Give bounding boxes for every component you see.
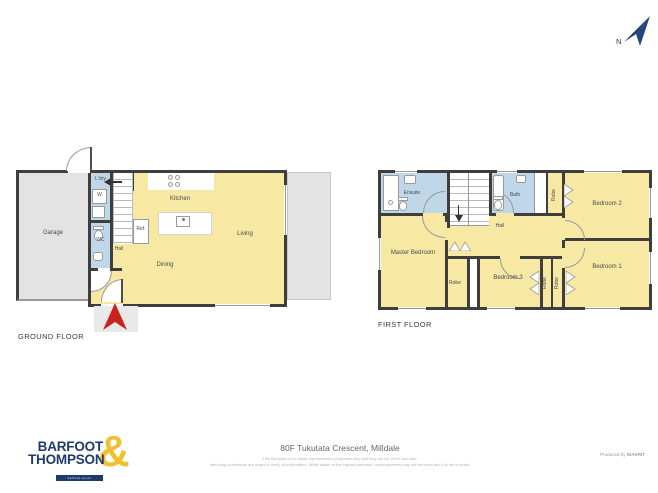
brand-line-2: THOMPSON — [28, 453, 103, 466]
stairs-first-right-flight — [469, 173, 489, 226]
garage-label: Garage — [18, 230, 88, 237]
wall-segment — [445, 240, 448, 307]
property-address: 80F Tukutata Crescent, Milldale — [175, 443, 505, 453]
window — [584, 170, 622, 173]
brand-wordmark: BARFOOT THOMPSON — [28, 440, 103, 466]
toilet-icon — [494, 200, 502, 210]
window — [497, 170, 517, 173]
brand-logo: & BARFOOT THOMPSON barfoot.co.nz — [28, 438, 138, 482]
cooktop-burner-icon — [175, 175, 180, 180]
window — [487, 307, 515, 310]
wall-segment — [546, 173, 548, 216]
bath-label: Bath — [500, 193, 530, 199]
kitchen-label: Kitchen — [150, 196, 210, 203]
floorplan-sheet: N Ref. W Garage L'dry — [0, 0, 658, 493]
disclaimer-line-1: This floorplan is for visual representat… — [175, 456, 505, 462]
first-floor-title: FIRST FLOOR — [378, 320, 432, 329]
wall-segment — [381, 213, 423, 216]
wall-segment — [562, 240, 565, 248]
window — [395, 170, 417, 173]
robe-bedroom1-label: Robe — [554, 269, 560, 297]
window — [398, 307, 426, 310]
window — [585, 307, 620, 310]
hall-label-ground: Hall — [104, 247, 134, 253]
master-bedroom-label: Master Bedroom — [382, 250, 444, 257]
door-leaf — [90, 147, 92, 171]
robe-bedroom2-label: Robe — [551, 180, 557, 210]
ground-floor-title: GROUND FLOOR — [18, 332, 84, 341]
basin-icon — [404, 175, 416, 184]
north-arrow-icon — [624, 16, 652, 47]
cooktop-burner-icon — [168, 175, 173, 180]
robe-master-label: Robe — [444, 281, 466, 287]
stairs-direction-arrow — [455, 215, 463, 222]
stairs-ground — [113, 173, 133, 244]
ensuite-label: Ensuite — [392, 191, 432, 197]
door-leaf — [121, 279, 123, 303]
bedroom2-label: Bedroom 2 — [568, 201, 646, 208]
window — [215, 304, 270, 307]
disclaimer-line-2: Intending purchasers are urged to verify… — [175, 462, 505, 468]
adjacent-building-area — [287, 172, 331, 300]
kitchen-bench — [148, 173, 214, 190]
hall-label-first: Hall — [480, 224, 520, 230]
wall-segment — [514, 213, 562, 216]
laundry-tub-icon — [92, 206, 105, 218]
basin-icon — [516, 175, 526, 183]
wall-segment — [445, 216, 448, 222]
cooktop-burner-icon — [168, 182, 173, 187]
shower-drain-icon — [388, 200, 393, 205]
wall-segment — [551, 259, 553, 307]
entry-arrow-icon — [103, 303, 127, 330]
window — [378, 238, 381, 270]
door-arc — [66, 147, 92, 171]
void-strip — [470, 259, 477, 307]
living-label: Living — [215, 231, 275, 238]
produced-by: Produced by DIAKRIT — [555, 452, 645, 457]
faucet-icon — [182, 218, 185, 221]
window — [649, 188, 652, 218]
window — [649, 252, 652, 284]
fridge-label: Ref. — [131, 227, 151, 233]
robe-bedroom3-label: Robe — [542, 269, 548, 297]
stairs-divider — [468, 173, 469, 226]
north-label: N — [616, 37, 621, 46]
robe-doors-icon — [449, 240, 471, 251]
robe-doors-icon — [566, 271, 577, 295]
wall-segment — [492, 213, 496, 216]
cooktop-burner-icon — [175, 182, 180, 187]
dining-label: Dining — [135, 262, 195, 269]
bedroom3-label: Bedroom 3 — [480, 275, 536, 282]
wall-segment — [562, 268, 565, 307]
wc-label: WC — [91, 238, 110, 244]
brand-website-bar: barfoot.co.nz — [56, 475, 103, 481]
window — [284, 185, 287, 235]
toilet-icon — [399, 201, 407, 211]
basin-icon — [93, 252, 103, 261]
wall-segment — [489, 173, 492, 216]
linen-closet — [534, 173, 546, 213]
washer-label: W — [92, 193, 107, 199]
wall-segment — [91, 220, 110, 223]
door-opening — [68, 170, 90, 173]
producer-name: DIAKRIT — [627, 452, 645, 457]
laundry-label: L'dry — [89, 177, 112, 183]
wall-segment — [477, 259, 480, 307]
bedroom1-label: Bedroom 1 — [568, 264, 646, 271]
produced-by-text: Produced by — [600, 452, 627, 457]
